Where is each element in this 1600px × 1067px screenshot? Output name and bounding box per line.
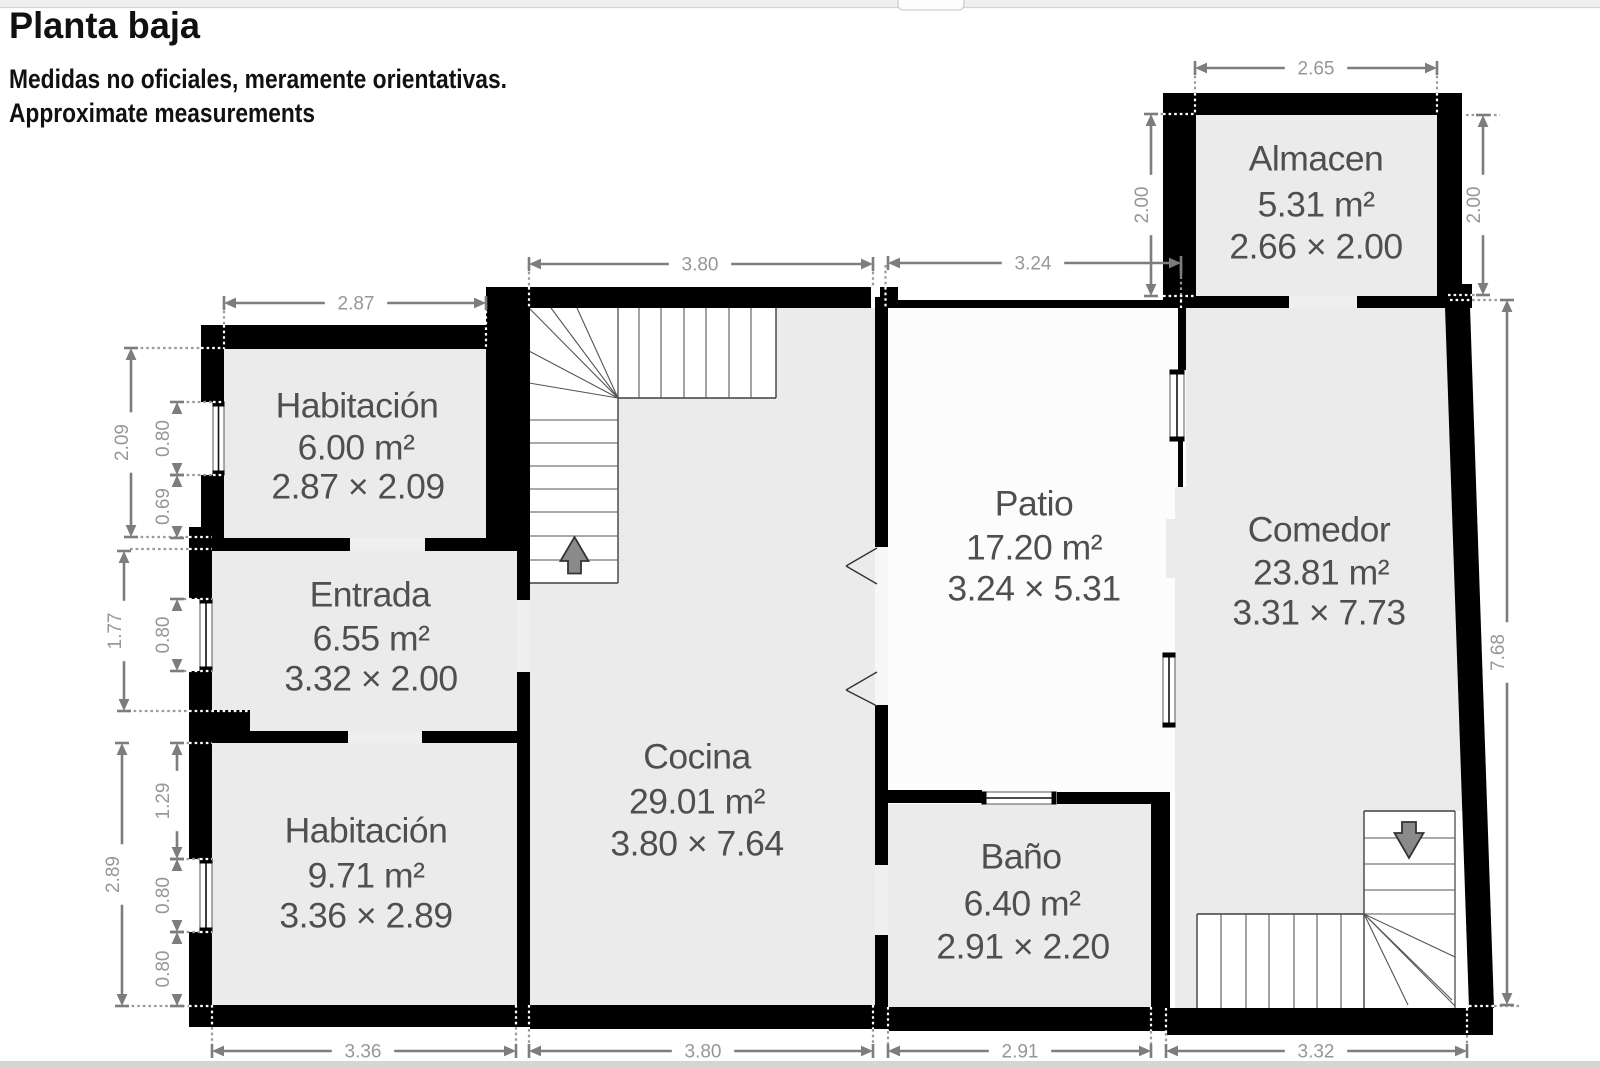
svg-text:3.24 × 5.31: 3.24 × 5.31: [947, 569, 1120, 609]
svg-text:29.01 m²: 29.01 m²: [629, 782, 766, 822]
svg-text:3.31 × 7.73: 3.31 × 7.73: [1232, 593, 1405, 633]
svg-text:23.81 m²: 23.81 m²: [1253, 553, 1390, 593]
svg-text:3.36 × 2.89: 3.36 × 2.89: [279, 896, 452, 936]
svg-text:0.80: 0.80: [153, 617, 174, 654]
svg-text:3.24: 3.24: [1015, 254, 1052, 275]
svg-text:2.00: 2.00: [1464, 187, 1485, 224]
svg-text:Cocina: Cocina: [643, 737, 751, 777]
svg-text:Planta baja: Planta baja: [9, 5, 200, 46]
svg-text:Medidas no oficiales, merament: Medidas no oficiales, meramente orientat…: [9, 64, 507, 94]
svg-text:2.66 × 2.00: 2.66 × 2.00: [1229, 227, 1402, 267]
svg-text:6.55 m²: 6.55 m²: [313, 619, 431, 659]
svg-text:1.29: 1.29: [153, 783, 174, 820]
svg-text:0.80: 0.80: [153, 951, 174, 988]
svg-text:0.69: 0.69: [153, 488, 174, 525]
svg-text:3.32: 3.32: [1298, 1042, 1335, 1063]
svg-text:3.32 × 2.00: 3.32 × 2.00: [284, 659, 457, 699]
svg-text:9.71 m²: 9.71 m²: [308, 856, 426, 896]
svg-text:0.80: 0.80: [153, 420, 174, 457]
svg-text:Habitación: Habitación: [285, 811, 448, 851]
svg-text:2.89: 2.89: [103, 856, 124, 893]
svg-text:Comedor: Comedor: [1248, 510, 1391, 550]
svg-text:2.09: 2.09: [112, 424, 133, 461]
svg-text:Approximate measurements: Approximate measurements: [9, 98, 315, 128]
svg-text:6.40 m²: 6.40 m²: [964, 884, 1082, 924]
svg-text:2.91: 2.91: [1002, 1042, 1039, 1063]
svg-text:Baño: Baño: [981, 837, 1062, 877]
svg-text:Almacen: Almacen: [1249, 139, 1384, 179]
svg-text:Entrada: Entrada: [310, 575, 432, 615]
svg-text:6.00 m²: 6.00 m²: [298, 428, 416, 468]
svg-text:3.36: 3.36: [345, 1042, 382, 1063]
svg-text:3.80 × 7.64: 3.80 × 7.64: [610, 824, 783, 864]
svg-text:2.87 × 2.09: 2.87 × 2.09: [271, 467, 444, 507]
svg-text:2.00: 2.00: [1132, 187, 1153, 224]
svg-text:Patio: Patio: [995, 484, 1073, 524]
svg-text:7.68: 7.68: [1488, 634, 1509, 671]
svg-text:3.80: 3.80: [685, 1042, 722, 1063]
svg-text:2.91 × 2.20: 2.91 × 2.20: [936, 927, 1109, 967]
svg-text:3.80: 3.80: [682, 255, 719, 276]
svg-text:2.87: 2.87: [338, 294, 375, 315]
svg-text:0.80: 0.80: [153, 877, 174, 914]
svg-text:17.20 m²: 17.20 m²: [966, 528, 1103, 568]
svg-text:1.77: 1.77: [105, 613, 126, 650]
svg-text:5.31 m²: 5.31 m²: [1258, 185, 1376, 225]
svg-text:2.65: 2.65: [1298, 59, 1335, 80]
svg-text:Habitación: Habitación: [276, 386, 439, 426]
